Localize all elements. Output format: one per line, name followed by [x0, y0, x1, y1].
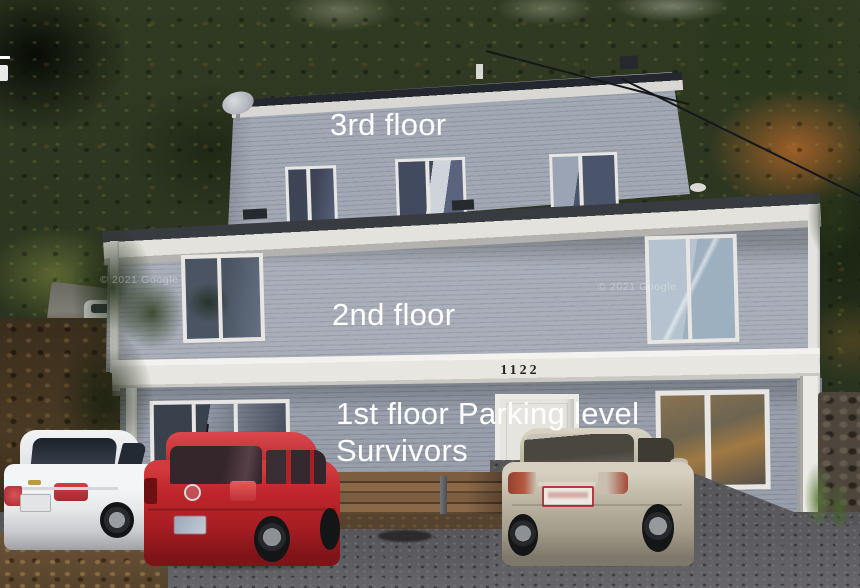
- nissan-emblem: [184, 484, 201, 501]
- wheel: [254, 516, 290, 562]
- label-1st-floor-line1: 1st floor Parking level: [336, 395, 639, 432]
- roof-chimney: [620, 56, 639, 70]
- house-number: 1122: [494, 363, 546, 379]
- roof-vent-pipe: [476, 64, 483, 79]
- ui-fragment-dash: [0, 56, 10, 59]
- license-plate: [20, 494, 51, 512]
- ledge-vent: [243, 208, 267, 219]
- pavement-stain: [378, 530, 432, 542]
- ledge-vent-disc: [690, 183, 706, 192]
- ui-fragment-box: [0, 65, 8, 81]
- chrome-trim: [22, 487, 118, 490]
- ledge-vent: [452, 199, 474, 210]
- taillight: [508, 472, 536, 494]
- label-1st-floor-line2: Survivors: [336, 432, 639, 469]
- dirt-strip: [332, 514, 504, 529]
- taillight: [230, 482, 256, 501]
- taillight: [144, 478, 157, 504]
- red-car-side-windows: [266, 450, 326, 484]
- taillight: [598, 472, 628, 494]
- label-1st-floor: 1st floor Parking level Survivors: [336, 395, 639, 469]
- annotated-house-photo: 1122: [0, 0, 860, 588]
- plate-text-blur: [548, 492, 588, 498]
- red-hatchback: [144, 424, 340, 576]
- google-watermark: © 2021 Google: [100, 274, 179, 286]
- second-floor-window-left: [181, 253, 265, 343]
- weeds: [804, 462, 832, 524]
- label-3rd-floor: 3rd floor: [330, 106, 446, 143]
- third-floor-window-left: [285, 165, 338, 225]
- wheel: [642, 504, 674, 552]
- label-2nd-floor: 2nd floor: [332, 296, 455, 333]
- taillight: [54, 483, 88, 501]
- weeds: [828, 480, 850, 528]
- wheel: [320, 508, 340, 550]
- wheel: [508, 514, 538, 556]
- red-car-rear-window: [170, 446, 262, 484]
- bumper-crease: [148, 508, 336, 511]
- chevrolet-emblem: [28, 480, 41, 485]
- white-car: [4, 430, 162, 550]
- third-floor-window-right: [549, 152, 619, 210]
- license-plate: [174, 516, 206, 534]
- google-watermark: © 2021 Google: [598, 281, 677, 293]
- wheel: [100, 502, 134, 538]
